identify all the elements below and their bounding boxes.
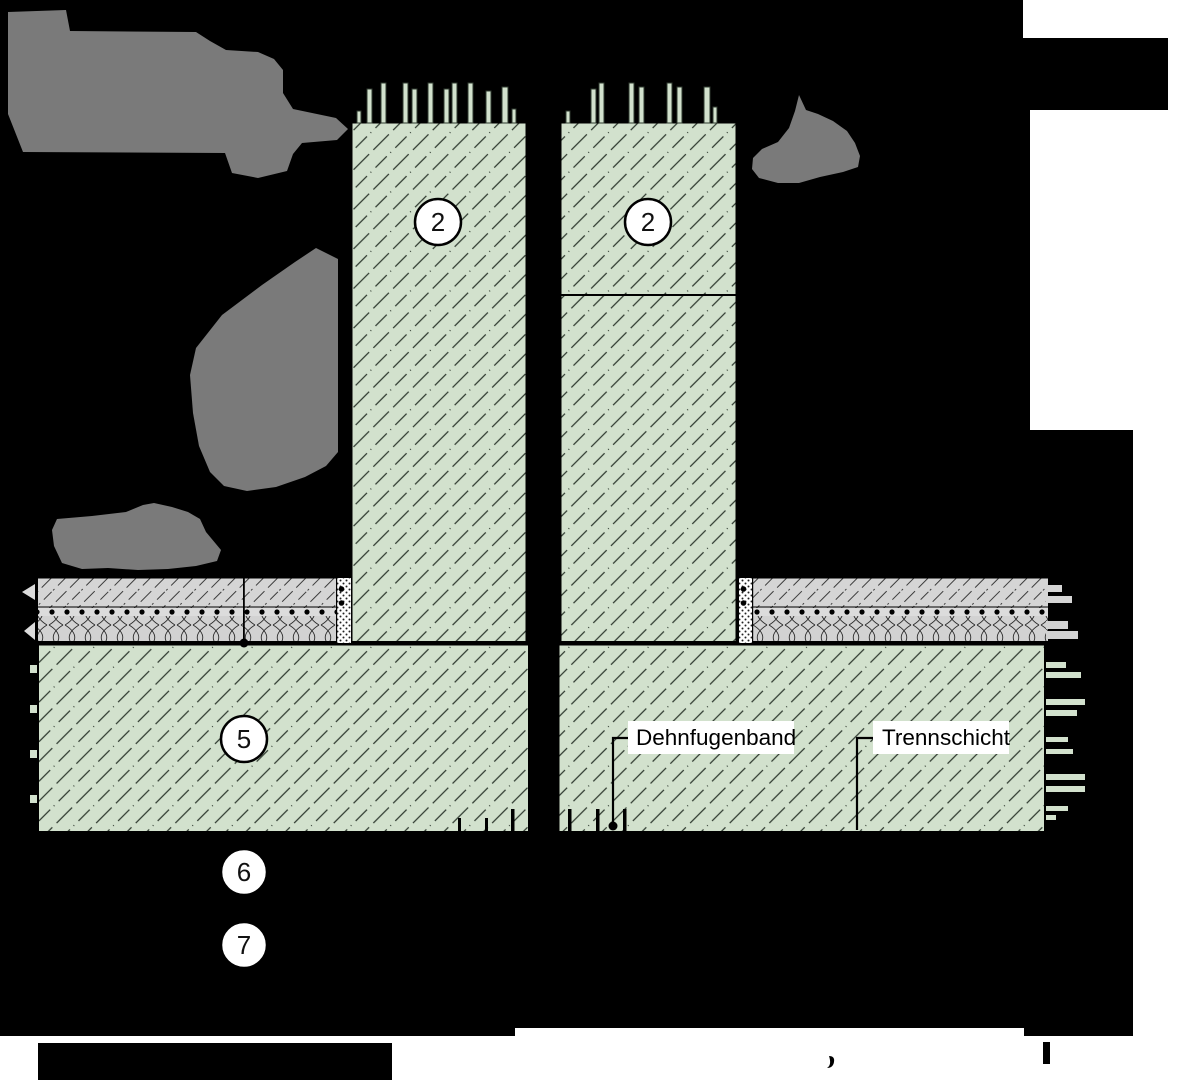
scale-bar	[38, 1043, 392, 1080]
callout-number: 5	[237, 724, 251, 754]
impact-sound-insulation	[753, 616, 1048, 641]
slab-bottom-edge	[35, 831, 1046, 837]
separating-layer	[753, 608, 1048, 616]
slab-top-line	[35, 641, 1046, 646]
wall-pour-joint-line	[560, 294, 738, 296]
screed-layer	[35, 578, 337, 608]
floor-layers-right	[739, 577, 1078, 643]
callout-wall-left: 2	[415, 199, 461, 245]
label-trennschicht: Trennschicht	[882, 725, 1011, 750]
callout-below-slab-1: 6	[221, 849, 267, 895]
callout-number: 6	[237, 857, 251, 887]
label-dehnfugenband: Dehnfugenband	[636, 725, 796, 750]
callout-number: 2	[641, 207, 655, 237]
callout-number: 7	[237, 930, 251, 960]
callout-wall-right: 2	[625, 199, 671, 245]
tick-mark	[1043, 1042, 1050, 1064]
construction-detail-drawing: Dehnfugenband Trennschicht 2 2 5 6 7	[0, 0, 1181, 1080]
separating-layer	[35, 608, 337, 616]
impact-sound-insulation	[35, 616, 337, 641]
screed-layer	[753, 578, 1048, 608]
callout-below-slab-2: 7	[221, 922, 267, 968]
screed-joint-line	[243, 578, 245, 642]
technical-drawing-canvas: Dehnfugenband Trennschicht 2 2 5 6 7	[0, 0, 1181, 1080]
callout-slab: 5	[221, 716, 267, 762]
slab-left	[35, 643, 528, 833]
floor-layers-left	[22, 577, 351, 648]
callout-number: 2	[431, 207, 445, 237]
